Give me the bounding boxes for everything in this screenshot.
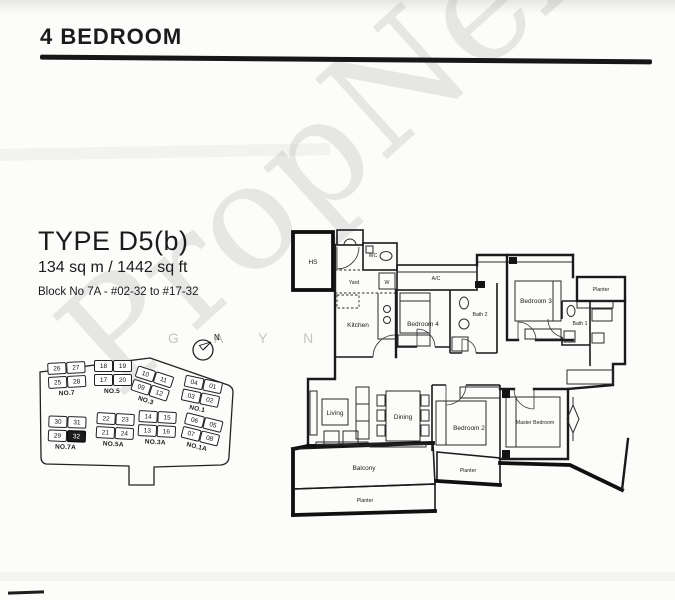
- unit-number: 13: [138, 424, 158, 437]
- room-label-planter-top: Planter: [593, 287, 610, 293]
- unit-number: 24: [115, 427, 135, 440]
- room-label-wc: WC: [369, 253, 378, 259]
- scan-artifact-top: [0, 0, 675, 14]
- room-label-kitchen: Kitchen: [347, 322, 369, 329]
- block-name: NO.5A: [103, 440, 124, 448]
- site-block-no7a: 30 31 29 32 NO.7A: [47, 415, 84, 451]
- room-label-planter-bottom: Planter: [357, 498, 374, 504]
- room-label-planter-mid: Planter: [460, 468, 477, 474]
- unit-number: 01: [202, 379, 223, 395]
- unit-number: 15: [157, 411, 177, 424]
- unit-area: 134 sq m / 1442 sq ft: [38, 259, 187, 277]
- unit-number: 29: [48, 429, 67, 442]
- site-block-no5a: 22 23 21 24 NO.5A: [95, 412, 133, 449]
- room-label-master-bedroom: Master Bedroom: [516, 420, 554, 426]
- title-underline: [40, 55, 652, 65]
- unit-number: 14: [138, 410, 158, 423]
- unit-number: 19: [113, 360, 132, 372]
- room-label-ac: A/C: [432, 276, 441, 282]
- room-label-bedroom3: Bedroom 3: [520, 298, 552, 305]
- unit-number: 23: [115, 413, 135, 426]
- unit-number: 20: [113, 374, 132, 386]
- unit-block-range: Block No 7A - #02-32 to #17-32: [38, 286, 198, 298]
- scan-artifact-mid: [0, 143, 330, 161]
- room-label-bedroom4: Bedroom 4: [407, 321, 439, 328]
- room-label-dining: Dining: [394, 414, 413, 421]
- room-label-bath2: Bath 2: [473, 312, 488, 318]
- unit-number: 16: [157, 425, 177, 438]
- scan-artifact-bottom: [0, 572, 675, 581]
- unit-number: 30: [48, 415, 67, 428]
- room-label-yard: Yard: [349, 280, 360, 286]
- floor-plan: HS WC Yard W A/C Kitchen Bedroom 4 Bath …: [278, 193, 675, 570]
- unit-number: 02: [199, 392, 220, 408]
- scan-corner-mark: [8, 590, 44, 594]
- block-name: NO.7: [59, 390, 75, 398]
- unit-number: 25: [48, 376, 68, 389]
- site-block-no5: 18 19 17 20 NO.5: [94, 360, 130, 395]
- block-name: NO.5: [104, 388, 120, 395]
- unit-number: 22: [96, 412, 116, 425]
- unit-number: 31: [67, 416, 86, 429]
- site-block-no7: 26 27 25 28 NO.7: [47, 361, 85, 398]
- unit-number: 21: [96, 426, 116, 439]
- room-label-living: Living: [327, 410, 344, 417]
- scanned-floorplan-page: PropNex G A Y N 4 BEDROOM TYPE D5(b) 134…: [0, 0, 675, 600]
- page-title: 4 BEDROOM: [40, 24, 182, 50]
- room-label-washer: W: [385, 280, 390, 286]
- compass-north-label: N: [214, 333, 220, 342]
- room-label-bath1: Bath 1: [573, 321, 588, 327]
- room-label-bedroom2: Bedroom 2: [453, 425, 485, 432]
- block-name: NO.3A: [145, 438, 166, 446]
- unit-type: TYPE D5(b): [38, 226, 189, 257]
- unit-number: 26: [47, 362, 67, 375]
- block-name: NO.7A: [55, 444, 76, 452]
- unit-number: 27: [66, 361, 86, 374]
- site-block-no1: 04 01 03 02 NO.1: [179, 375, 221, 417]
- room-label-balcony: Balcony: [352, 465, 376, 472]
- site-block-no3a: 14 15 13 16 NO.3A: [137, 410, 175, 447]
- unit-number-highlighted: 32: [67, 430, 86, 443]
- room-label-hs: HS: [308, 259, 318, 266]
- unit-number: 28: [67, 375, 87, 388]
- unit-number: 17: [94, 374, 113, 386]
- unit-number: 18: [94, 360, 113, 372]
- site-plan: 26 27 25 28 NO.7 18 19 17 20 NO.5 10 11 …: [32, 352, 244, 504]
